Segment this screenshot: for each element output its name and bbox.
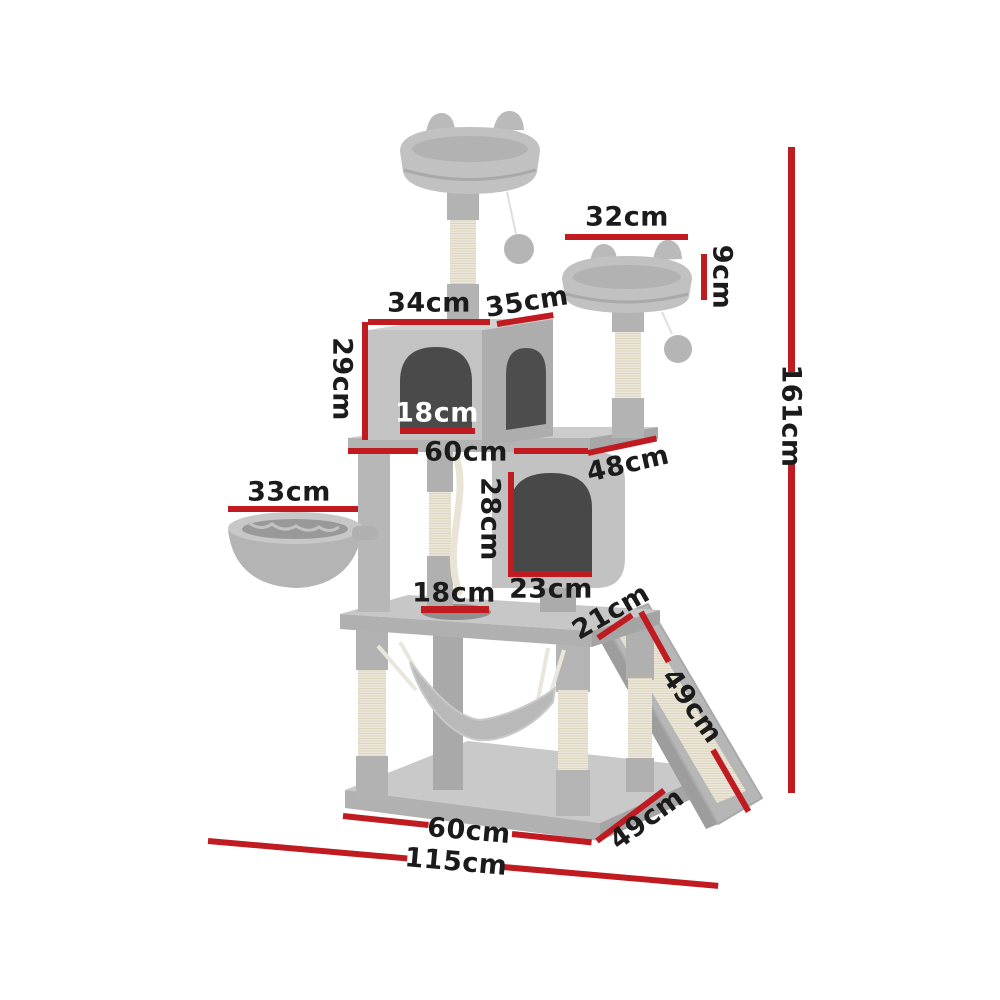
- dim-line-condo-door-width: [400, 428, 475, 434]
- climbing-rope: [453, 456, 460, 592]
- hanging-ball: [504, 234, 534, 264]
- hanging-ball: [664, 335, 692, 363]
- small-perch: [562, 240, 692, 438]
- basket: [228, 512, 378, 588]
- cat-ear: [653, 240, 682, 260]
- dim-label-top-perch-width: 32cm: [585, 202, 669, 233]
- dim-line-mid-platform-width-right: [514, 448, 588, 454]
- dim-line-condo-front-width: [368, 319, 490, 325]
- dim-label-lower-condo-door-height: 28cm: [475, 477, 506, 561]
- lower-condo-door: [510, 473, 592, 576]
- dim-line-top-perch-width: [565, 234, 688, 240]
- dim-label-mid-platform-width: 60cm: [424, 437, 508, 468]
- dim-line-lower-condo-door-height: [508, 472, 514, 577]
- dim-line-condo-height: [362, 322, 368, 440]
- cat-ear: [493, 111, 524, 131]
- dim-label-lower-condo-door-width: 23cm: [509, 574, 593, 605]
- dim-label-small-perch-height: 9cm: [707, 245, 738, 309]
- product-dimension-diagram: 32cm 9cm 34cm 35cm 29cm 18cm 60cm 48cm 3…: [0, 0, 1000, 1000]
- toy-string: [507, 192, 516, 234]
- dim-label-condo-height: 29cm: [327, 337, 358, 421]
- dim-label-total-height: 161cm: [776, 365, 807, 468]
- dim-line-mid-platform-width-left: [348, 448, 418, 454]
- dim-label-basket-width: 33cm: [247, 477, 331, 508]
- hammock: [378, 642, 564, 740]
- dim-label-platform-hole-width: 18cm: [412, 578, 496, 609]
- condo-side-window: [506, 348, 546, 430]
- toy-string: [662, 312, 672, 334]
- dim-line-total-height-upper: [788, 147, 795, 372]
- dim-label-condo-door-width: 18cm: [395, 398, 479, 429]
- dim-line-total-height-lower: [788, 462, 795, 793]
- dim-label-condo-front-width: 34cm: [387, 288, 471, 319]
